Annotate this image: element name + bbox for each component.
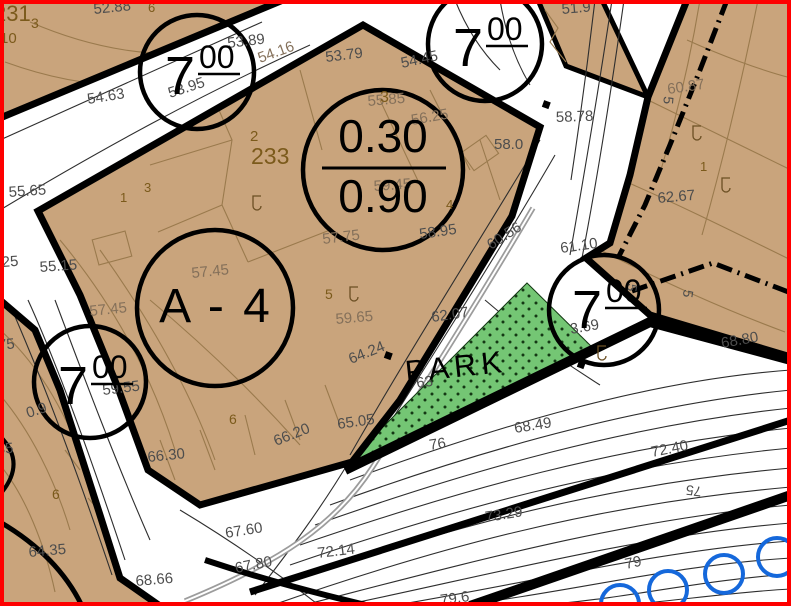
parcel-number: 3 [31, 15, 39, 31]
area-zone-label: A - 4 [159, 280, 273, 333]
height-value: 7 [58, 356, 88, 416]
height-sup: 00 [487, 11, 523, 47]
cadastral-map-svg: 52.8853.8954.6353.9554.1653.7954.4551.95… [0, 0, 791, 606]
elevation-label: 58.78 [556, 108, 594, 126]
ratio-bottom: 0.90 [338, 170, 428, 222]
height-sup: 00 [92, 349, 128, 385]
elevation-label: 58.0 [494, 136, 523, 153]
parcel-number: 6 [229, 411, 237, 427]
elevation-label: 68.66 [135, 570, 174, 590]
parcel-number: 233 [251, 143, 289, 169]
elevation-label: 64.35 [28, 541, 67, 561]
elevation-label: 62.67 [657, 187, 696, 207]
height-value: 7 [165, 46, 195, 106]
parcel-number: 4 [446, 197, 453, 212]
map-canvas[interactable]: 52.8853.8954.6353.9554.1653.7954.4551.95… [0, 0, 791, 606]
elevation-label: 76 [428, 435, 447, 454]
parcel-number: 5 [325, 286, 333, 302]
parcel-number: 3 [144, 180, 151, 195]
height-value: 7 [453, 18, 483, 78]
parcel-number: 1 [120, 190, 127, 205]
contour-index-label: 5 [660, 96, 677, 105]
height-value: 7 [572, 280, 602, 340]
elevation-label: 79 [623, 553, 643, 573]
elevation-label: 55.65 [8, 181, 47, 201]
contour-index-label: 75 [685, 482, 703, 500]
parcel-number: 231 [0, 1, 31, 26]
height-sup: 00 [199, 39, 235, 75]
ratio-top: 0.30 [338, 110, 428, 162]
parcel-number: 1 [700, 159, 707, 174]
elevation-label: 55.15 [39, 256, 78, 276]
height-sup: 00 [606, 273, 642, 309]
parcel-number: 3 [380, 89, 389, 106]
elevation-label: 59.65 [335, 308, 374, 328]
parcel-number: 6 [52, 486, 60, 502]
